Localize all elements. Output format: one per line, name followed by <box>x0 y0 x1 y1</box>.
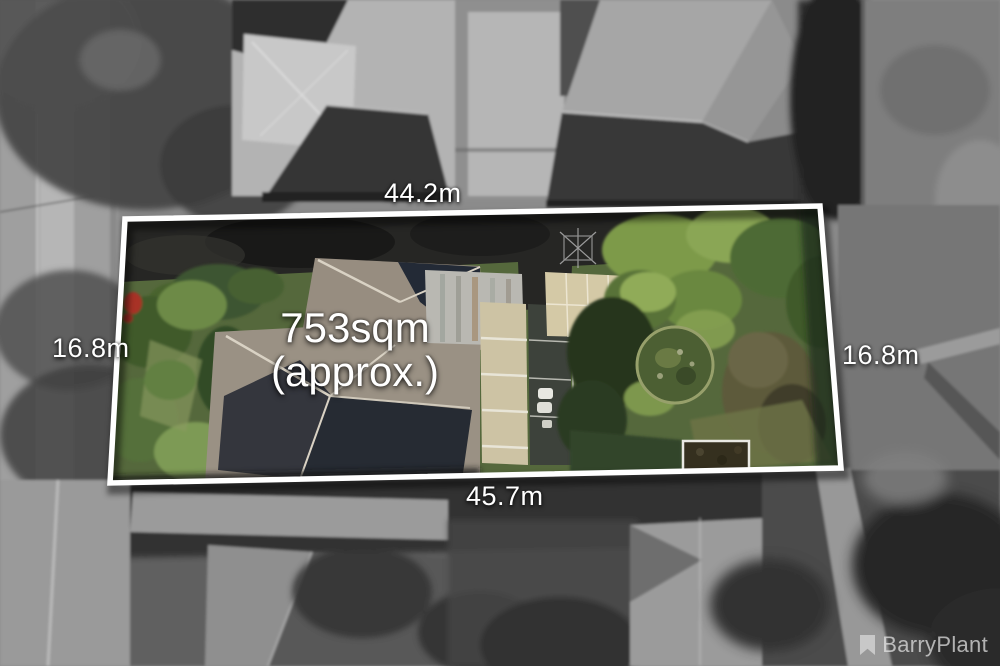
bookmark-icon <box>860 635 875 655</box>
area-qualifier: (approx.) <box>235 350 475 394</box>
dimension-label-bottom: 45.7m <box>466 483 544 510</box>
property-parcel-photo <box>100 195 858 495</box>
aerial-property-photo: 44.2m 16.8m 16.8m 45.7m 753sqm (approx.)… <box>0 0 1000 666</box>
area-label: 753sqm (approx.) <box>235 306 475 394</box>
area-value: 753sqm <box>235 306 475 350</box>
aerial-photo-scene <box>0 0 1000 666</box>
brand-watermark: BarryPlant <box>860 632 988 658</box>
brand-name: BarryPlant <box>882 632 988 658</box>
dimension-label-right: 16.8m <box>842 342 920 369</box>
dimension-label-left: 16.8m <box>52 335 130 362</box>
dimension-label-top: 44.2m <box>384 180 462 207</box>
